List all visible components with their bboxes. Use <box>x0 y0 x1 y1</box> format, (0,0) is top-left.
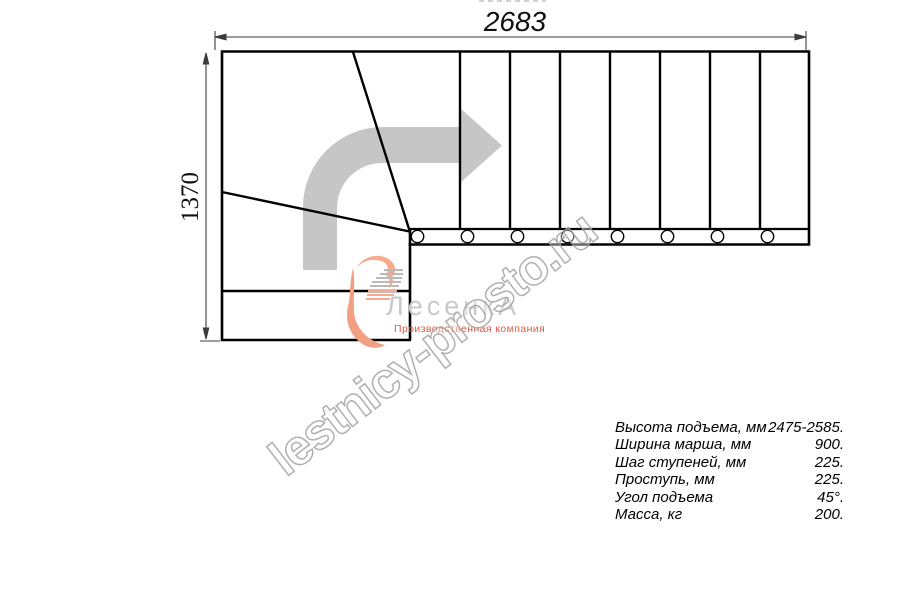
spec-value: 900. <box>751 436 844 453</box>
spec-value: 200. <box>682 506 844 523</box>
spec-label: Высота подъема, мм <box>615 419 767 436</box>
spec-row: Ширина марша, мм 900. <box>615 436 844 453</box>
stair-plan-page: ЛесенкА Производственная компания 2683 1… <box>0 0 900 600</box>
top-edge-artifact <box>479 0 546 2</box>
dimension-width-label: 2683 <box>430 6 600 38</box>
spec-value: 225. <box>715 471 844 488</box>
spec-value: 45°. <box>713 489 844 506</box>
spec-value: 2475-2585. <box>767 419 844 436</box>
step-lines <box>460 51 760 229</box>
spec-row: Шаг ступеней, мм 225. <box>615 454 844 471</box>
spec-row: Высота подъема, мм 2475-2585. <box>615 419 844 436</box>
spec-row: Масса, кг 200. <box>615 506 844 523</box>
spec-label: Проступь, мм <box>615 471 715 488</box>
spec-label: Шаг ступеней, мм <box>615 454 746 471</box>
dimension-height-label: 1370 <box>177 137 205 257</box>
spec-value: 225. <box>746 454 844 471</box>
specs-table: Высота подъема, мм 2475-2585. Ширина мар… <box>615 419 844 523</box>
spec-label: Масса, кг <box>615 506 682 523</box>
spec-label: Угол подъема <box>615 489 713 506</box>
spec-label: Ширина марша, мм <box>615 436 751 453</box>
spec-row: Угол подъема 45°. <box>615 489 844 506</box>
spec-row: Проступь, мм 225. <box>615 471 844 488</box>
